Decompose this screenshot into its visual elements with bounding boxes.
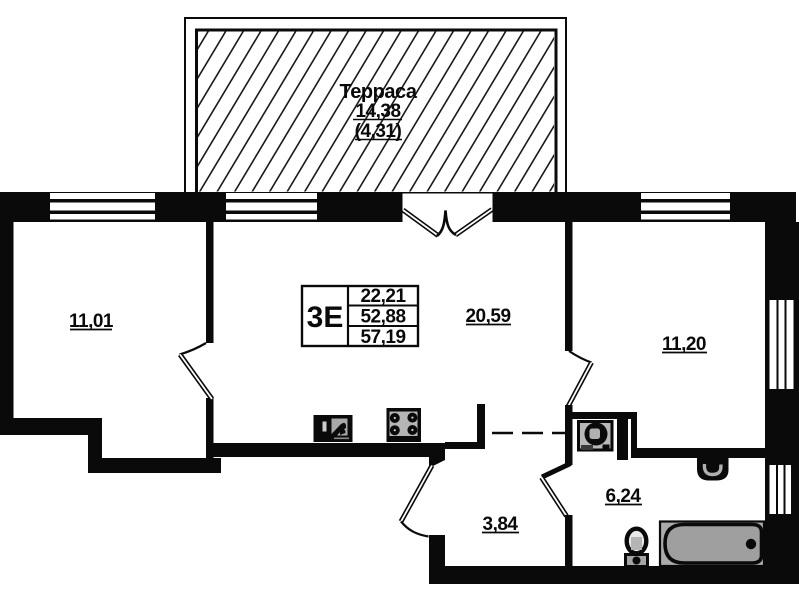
- svg-text:3Е: 3Е: [307, 301, 344, 334]
- svg-text:22,21: 22,21: [360, 286, 406, 307]
- svg-text:57,19: 57,19: [360, 327, 405, 348]
- svg-text:Терраса: Терраса: [340, 81, 418, 103]
- svg-text:52,88: 52,88: [360, 307, 405, 328]
